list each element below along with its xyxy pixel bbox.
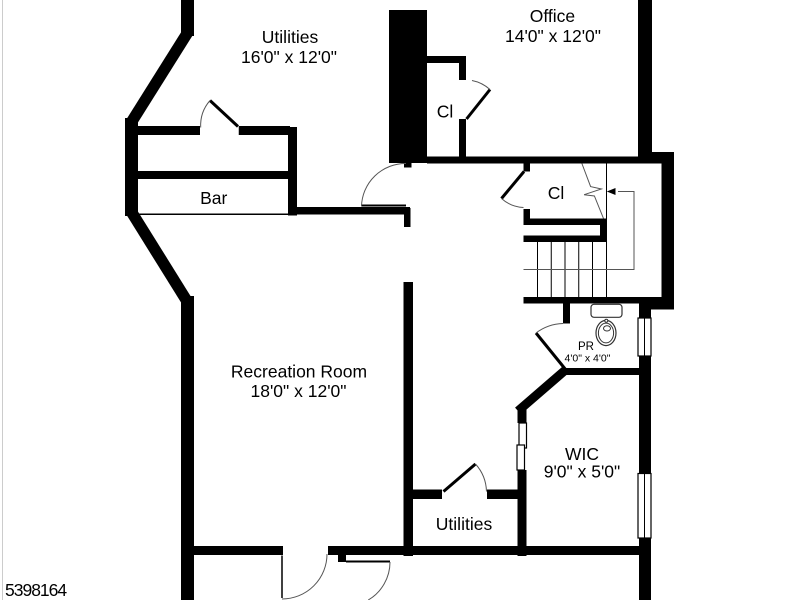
svg-text:Cl: Cl	[437, 102, 454, 122]
svg-text:Office: Office	[530, 6, 575, 26]
svg-text:4'0" x 4'0": 4'0" x 4'0"	[565, 353, 611, 365]
svg-text:PR: PR	[578, 341, 594, 353]
svg-text:Utilities: Utilities	[436, 514, 493, 534]
svg-text:9'0" x 5'0": 9'0" x 5'0"	[544, 461, 621, 481]
svg-text:5398164: 5398164	[5, 580, 67, 600]
svg-text:Cl: Cl	[548, 183, 565, 203]
svg-text:14'0" x 12'0": 14'0" x 12'0"	[505, 26, 601, 46]
svg-text:Recreation Room: Recreation Room	[231, 362, 367, 382]
svg-text:Utilities: Utilities	[262, 27, 319, 47]
svg-text:16'0" x 12'0": 16'0" x 12'0"	[241, 47, 337, 67]
svg-text:18'0" x 12'0": 18'0" x 12'0"	[251, 381, 347, 401]
svg-text:Bar: Bar	[200, 188, 227, 208]
